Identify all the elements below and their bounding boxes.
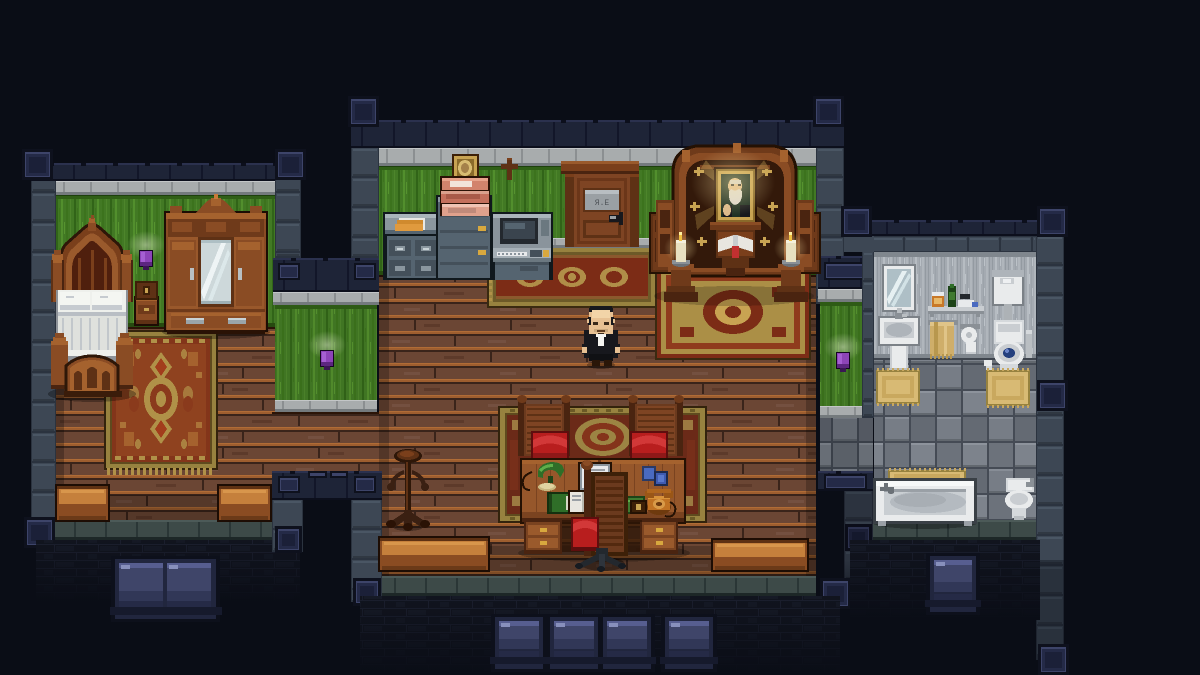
svg-text:Я.Е: Я.Е	[595, 199, 610, 208]
